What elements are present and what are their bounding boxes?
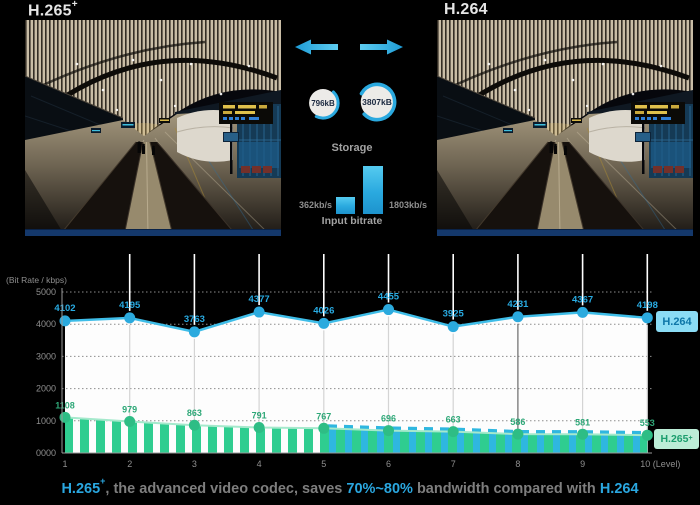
input-bitrate-value-h265: 362kb/s xyxy=(272,200,332,210)
caption-codec-h264: H.264 xyxy=(600,481,639,497)
legend-h264: H.264 xyxy=(656,311,698,332)
svg-text:7: 7 xyxy=(451,459,456,469)
storage-value-h264: 3807kB xyxy=(356,81,398,123)
storage-value-h265: 796kB xyxy=(305,85,341,121)
caption: H.265+, the advanced video codec, saves … xyxy=(0,479,700,497)
input-bitrate-bar-h265 xyxy=(336,197,355,214)
svg-text:5000: 5000 xyxy=(36,287,56,297)
arrow-right-icon xyxy=(360,39,404,55)
storage-ring-h264: 3807kB xyxy=(356,81,398,123)
svg-text:3: 3 xyxy=(192,459,197,469)
svg-text:(Bit Rate / kbps): (Bit Rate / kbps) xyxy=(6,275,67,285)
caption-savings: 70%~80% xyxy=(346,481,413,497)
infographic-root: H.265+ H.264 796kB 3807kB Storage 362kb/… xyxy=(0,0,700,505)
svg-text:696: 696 xyxy=(381,414,396,424)
caption-text-a: , the advanced video codec, saves xyxy=(105,481,346,497)
svg-text:9: 9 xyxy=(580,459,585,469)
svg-text:1108: 1108 xyxy=(55,400,75,410)
svg-text:3925: 3925 xyxy=(443,309,465,320)
svg-text:586: 586 xyxy=(510,417,525,427)
codec-title-h264: H.264 xyxy=(444,1,488,19)
svg-text:767: 767 xyxy=(316,411,331,421)
svg-text:10 (Level): 10 (Level) xyxy=(640,459,680,469)
arrow-left-icon xyxy=(294,39,338,55)
svg-text:979: 979 xyxy=(122,404,137,414)
storage-label: Storage xyxy=(302,142,402,154)
svg-text:8: 8 xyxy=(515,459,520,469)
svg-text:4026: 4026 xyxy=(313,305,334,316)
svg-text:4102: 4102 xyxy=(54,303,75,314)
caption-text-b: bandwidth compared with xyxy=(413,481,600,497)
terminal-photo-right xyxy=(437,20,693,236)
svg-text:5: 5 xyxy=(321,459,326,469)
svg-text:4377: 4377 xyxy=(249,294,270,305)
svg-text:6: 6 xyxy=(386,459,391,469)
svg-text:4367: 4367 xyxy=(572,294,593,305)
svg-text:553: 553 xyxy=(640,418,655,428)
input-bitrate-value-h264: 1803kb/s xyxy=(389,200,427,210)
svg-text:1: 1 xyxy=(62,459,67,469)
svg-text:663: 663 xyxy=(446,415,461,425)
svg-text:791: 791 xyxy=(252,411,267,421)
input-bitrate-bar-h264 xyxy=(363,166,383,214)
codec-title-h265: H.265+ xyxy=(28,1,78,20)
storage-ring-h265: 796kB xyxy=(305,85,341,121)
svg-text:2: 2 xyxy=(127,459,132,469)
legend-h265: H.265+ xyxy=(654,429,699,449)
svg-text:4: 4 xyxy=(257,459,262,469)
svg-text:3763: 3763 xyxy=(184,314,205,325)
svg-text:4231: 4231 xyxy=(507,299,529,310)
svg-text:4195: 4195 xyxy=(119,300,141,311)
input-bitrate-label: Input bitrate xyxy=(302,215,402,227)
svg-text:0000: 0000 xyxy=(36,448,56,458)
svg-text:863: 863 xyxy=(187,408,202,418)
terminal-photo-left xyxy=(25,20,281,236)
svg-text:4455: 4455 xyxy=(378,292,400,303)
bitrate-chart: 4102419537634377402644553925423143674198… xyxy=(0,252,700,472)
svg-text:3000: 3000 xyxy=(36,351,56,361)
sample-image-h265 xyxy=(25,20,281,236)
caption-codec-h265: H.265 xyxy=(61,481,100,497)
svg-text:581: 581 xyxy=(575,417,590,427)
svg-text:4000: 4000 xyxy=(36,319,56,329)
svg-text:4198: 4198 xyxy=(637,300,658,311)
svg-text:1000: 1000 xyxy=(36,416,56,426)
sample-image-h264 xyxy=(437,20,693,236)
svg-text:2000: 2000 xyxy=(36,384,56,394)
